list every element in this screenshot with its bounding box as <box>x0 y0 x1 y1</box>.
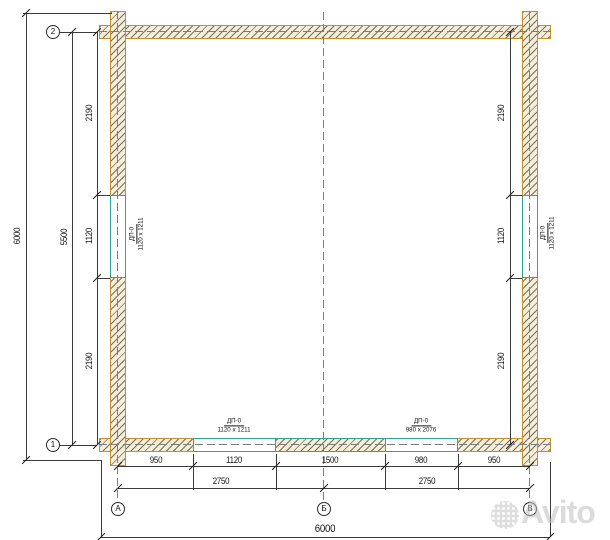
ext-line-bottom-right-v <box>550 462 551 537</box>
dim-bottom-2750-right: 2750 <box>419 476 436 486</box>
centerline-wall-bottom <box>99 444 551 445</box>
door2-ext-left <box>385 454 386 490</box>
dim-left-seg-mid: 1120 <box>84 228 94 244</box>
window-left <box>110 195 126 278</box>
ext-line-top-left <box>23 13 112 14</box>
dim-left-seg-bottom: 2190 <box>84 353 94 370</box>
centerline-wall-left <box>117 11 118 466</box>
window-left-ext-bottom <box>97 278 110 279</box>
dim-overall-width: 6000 <box>315 523 335 535</box>
door-left-tag: ДП-0 <box>224 417 244 426</box>
door-right-size: 980 x 2076 <box>406 427 437 435</box>
dim-bottom-950-left: 950 <box>150 455 162 465</box>
door1-ext-right <box>276 454 277 490</box>
window-right-size: 1120 x 1211 <box>549 216 557 249</box>
axis-marker-b: Б <box>317 502 331 516</box>
door-bottom-left <box>193 438 276 452</box>
door-right-label: ДП-0 980 x 2076 <box>406 417 437 434</box>
dim-line-right-segments <box>510 32 511 445</box>
dim-line-axis-height <box>72 32 73 445</box>
opening-edge-line-bottom <box>276 451 385 452</box>
dim-line-left-segments <box>97 32 98 445</box>
dim-line-overall-width <box>101 537 550 538</box>
window-right-ext-top <box>510 195 522 196</box>
centerline-axis-b <box>323 12 324 502</box>
centerline-wall-top <box>99 31 551 32</box>
axis-marker-1: 1 <box>46 438 60 452</box>
dim-bottom-950-right: 950 <box>488 455 500 465</box>
dim-right-seg-bottom: 2190 <box>496 353 506 370</box>
dim-bottom-980: 980 <box>415 455 427 465</box>
dim-line-overall-height <box>26 13 27 460</box>
door-bottom-right <box>385 438 458 452</box>
dim-axis-height: 5500 <box>59 229 69 246</box>
door1-ext-left <box>193 454 194 490</box>
window-right-ext-bottom <box>510 278 522 279</box>
axis-marker-a: А <box>111 502 125 516</box>
axis-marker-c: В <box>523 502 537 516</box>
floor-plan-drawing: 6000 5500 2190 1120 2190 2190 1120 2190 … <box>0 0 610 540</box>
opening-edge-line-top <box>276 438 385 439</box>
door-left-label: ДП-0 1120 x 1211 <box>217 417 250 434</box>
axis-marker-2: 2 <box>46 25 60 39</box>
axis-a-connector <box>117 466 118 502</box>
axis1-connector <box>60 445 97 446</box>
axis-c-connector <box>529 466 530 502</box>
window-left-ext-top <box>97 195 110 196</box>
dim-bottom-1120: 1120 <box>226 455 242 465</box>
avito-logo-icon <box>491 501 519 529</box>
dim-overall-height: 6000 <box>12 228 22 245</box>
window-left-label: ДП-0 1120 x 1211 <box>128 217 145 250</box>
dim-left-seg-top: 2190 <box>84 105 94 122</box>
dim-bottom-2750-left: 2750 <box>213 476 230 486</box>
window-left-size: 1120 x 1211 <box>138 217 146 250</box>
dim-right-seg-mid: 1120 <box>496 228 506 244</box>
dim-bottom-1500: 1500 <box>322 455 339 465</box>
window-right-label: ДП-0 1120 x 1211 <box>539 216 556 249</box>
ext-line-bottom-left-v <box>101 460 102 537</box>
door-left-size: 1120 x 1211 <box>217 427 250 435</box>
door2-ext-right <box>458 454 459 490</box>
window-right <box>522 195 538 278</box>
ext-line-bottom-left-h <box>23 460 101 461</box>
wall-bottom <box>99 438 551 452</box>
window-left-tag: ДП-0 <box>128 224 137 244</box>
axis2-connector <box>60 32 97 33</box>
wall-top <box>99 25 551 39</box>
centerline-wall-right <box>529 11 530 466</box>
dim-line-bottom-row1 <box>118 466 530 467</box>
dim-right-seg-top: 2190 <box>496 105 506 122</box>
door-right-tag: ДП-0 <box>411 417 431 426</box>
window-right-tag: ДП-0 <box>539 223 548 243</box>
